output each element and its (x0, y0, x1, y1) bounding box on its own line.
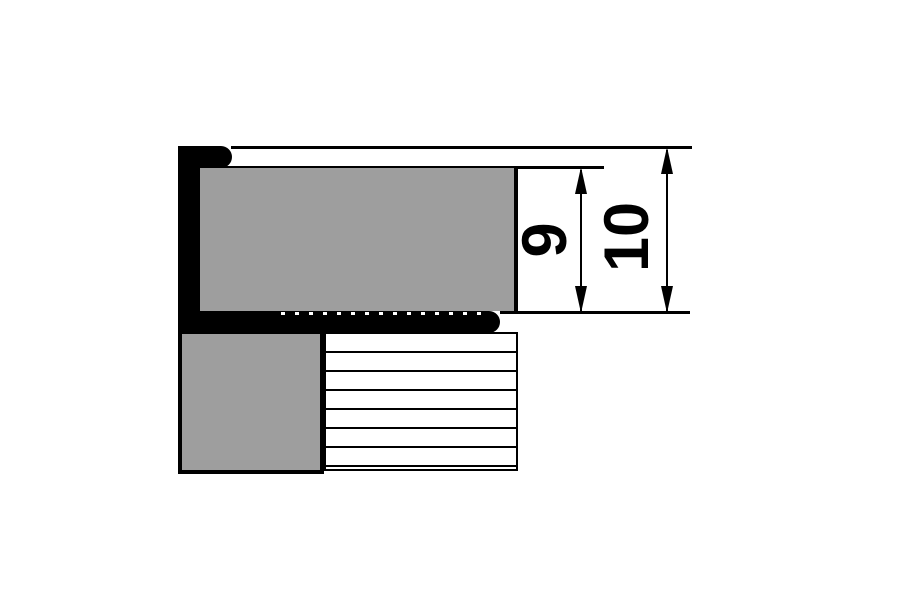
tile-cross-section (200, 168, 515, 311)
lower-tile-section (178, 330, 324, 474)
profile-vertical-wall (178, 146, 200, 334)
drawing-canvas: 9 10 (0, 0, 902, 599)
extension-line-profile-top (231, 146, 692, 149)
profile-serration-marks (281, 312, 485, 315)
dimension-10-arrowhead-top (661, 147, 673, 174)
adhesive-bed-hatch (324, 332, 518, 471)
dimension-label-10: 10 (567, 177, 687, 297)
